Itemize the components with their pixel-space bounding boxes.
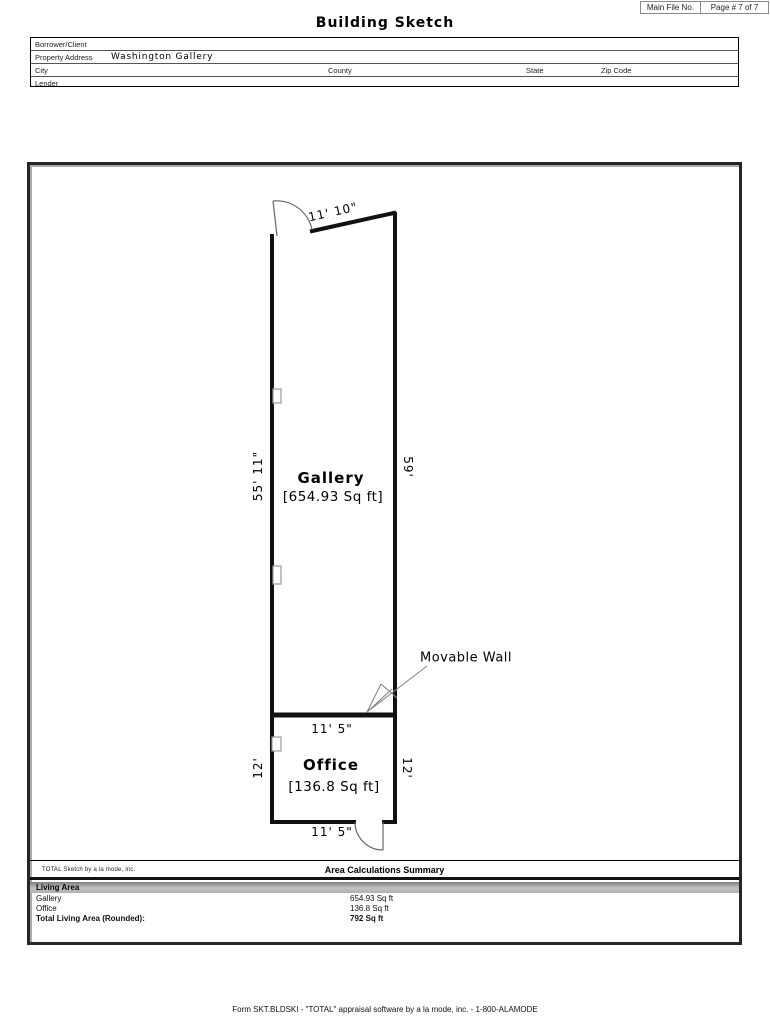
room-label-office: Office [303, 756, 359, 774]
window-marker-icon [273, 389, 281, 403]
dimension-office-top: 11' 5" [311, 722, 353, 736]
fan-line [367, 689, 392, 712]
room-label-gallery: Gallery [297, 469, 364, 487]
movable-wall-annotation: Movable Wall [420, 651, 512, 666]
living-area-label: Living Area [30, 883, 79, 892]
summary-gallery-label: Gallery [36, 894, 61, 903]
summary-office-value: 136.8 Sq ft [350, 904, 389, 913]
summary-thick-rule [30, 877, 739, 880]
dimension-office-bottom: 11' 5" [311, 825, 353, 839]
summary-separator-line [30, 860, 739, 861]
dimension-office-right: 12' [400, 757, 414, 779]
fan-line [367, 684, 381, 712]
summary-total-label: Total Living Area (Rounded): [36, 914, 145, 923]
summary-office-label: Office [36, 904, 57, 913]
form-footer: Form SKT.BLDSKI - "TOTAL" appraisal soft… [0, 1005, 770, 1014]
summary-total-value: 792 Sq ft [350, 914, 383, 923]
summary-title: Area Calculations Summary [30, 865, 739, 875]
door-symbols [273, 201, 383, 850]
window-marker-icon [272, 737, 281, 751]
document-page: Main File No. Page # 7 of 7 Building Ske… [0, 0, 770, 1024]
top-door-arc-icon [273, 201, 312, 230]
dimension-gallery-right: 59' [401, 456, 415, 478]
bottom-door-arc-icon [355, 822, 383, 850]
summary-gallery-value: 654.93 Sq ft [350, 894, 393, 903]
living-area-section-bar: Living Area [30, 882, 739, 893]
room-area-gallery: [654.93 Sq ft] [283, 489, 383, 505]
top-door-leaf [273, 201, 277, 236]
dimension-gallery-left: 55' 11" [251, 451, 265, 501]
dimension-office-left: 12' [251, 757, 265, 779]
window-marker-icon [273, 566, 281, 584]
room-area-office: [136.8 Sq ft] [288, 779, 379, 795]
